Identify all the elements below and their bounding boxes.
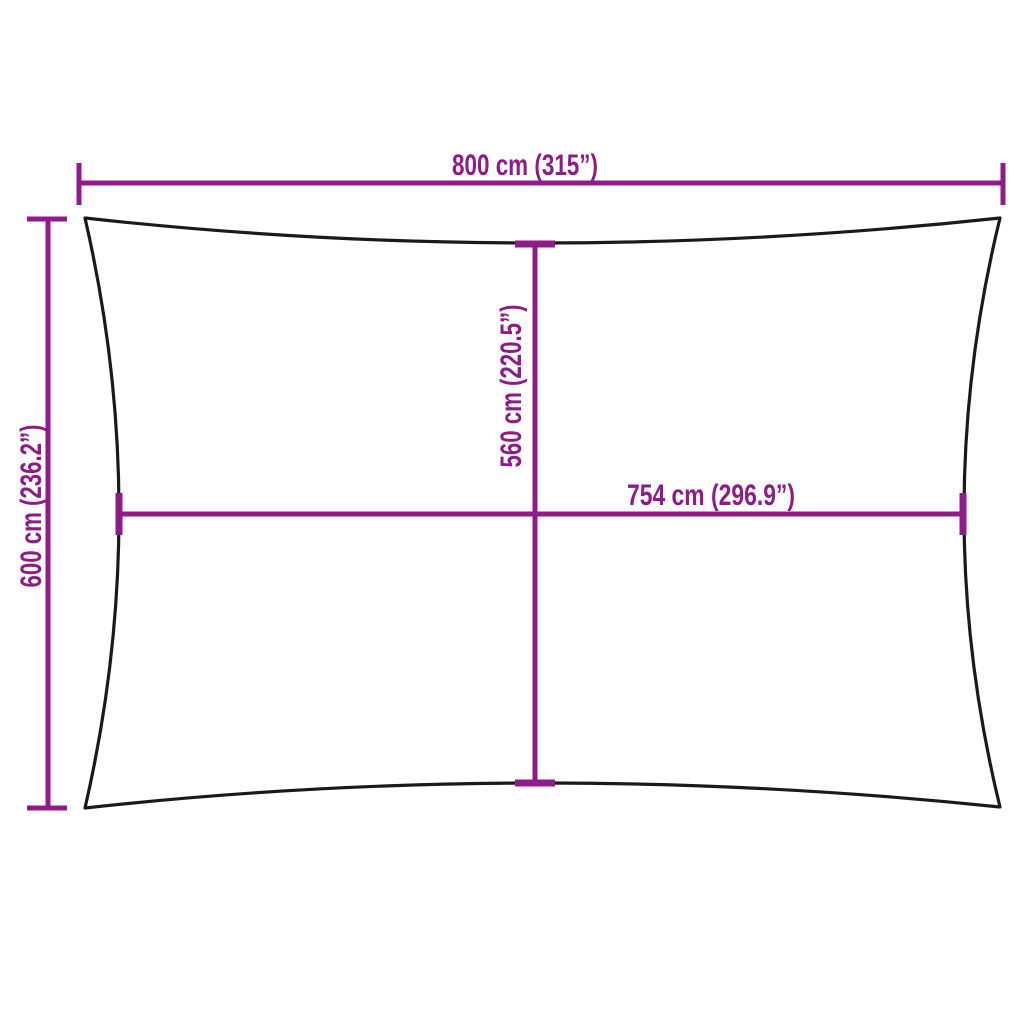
top-width-dimension: 800 cm (315”) — [79, 149, 1003, 205]
center-width-dimension: 754 cm (296.9”) — [119, 479, 963, 535]
center-width-label: 754 cm (296.9”) — [627, 479, 795, 512]
center-height-label: 560 cm (220.5”) — [495, 305, 528, 468]
left-height-label: 600 cm (236.2”) — [15, 425, 48, 588]
dimension-diagram-canvas: 800 cm (315”) 600 cm (236.2”) 560 cm (22… — [0, 0, 1024, 1024]
top-width-label: 800 cm (315”) — [452, 149, 598, 182]
left-height-dimension: 600 cm (236.2”) — [15, 219, 67, 808]
shade-sail-dimension-diagram: 800 cm (315”) 600 cm (236.2”) 560 cm (22… — [0, 0, 1024, 1024]
